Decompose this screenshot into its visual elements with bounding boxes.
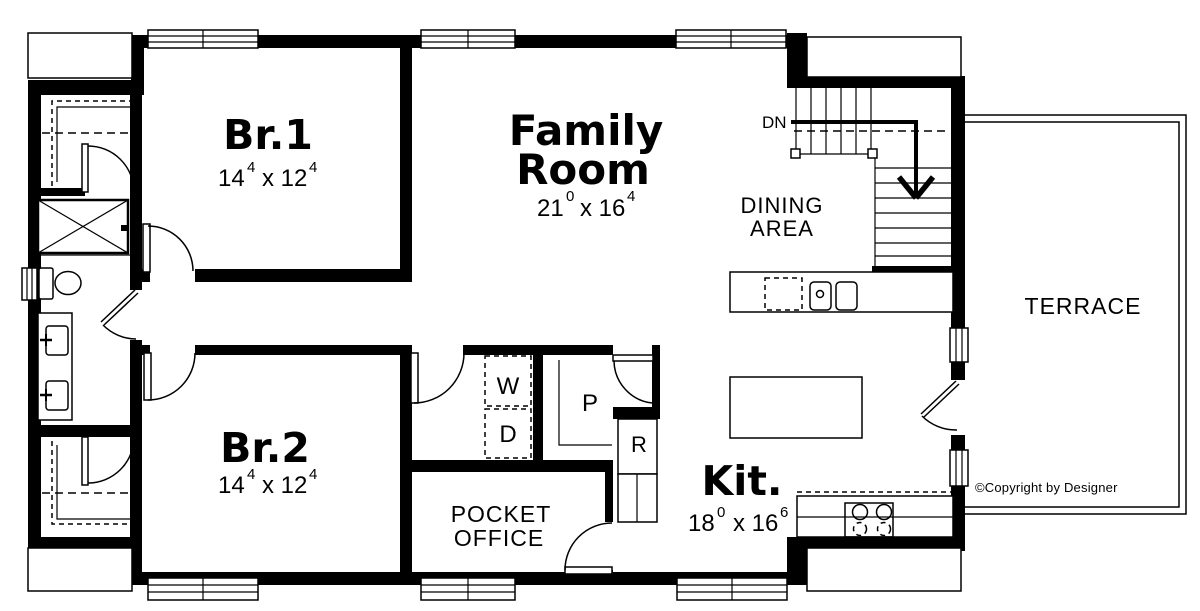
window-kitchen-east-lower	[950, 450, 968, 486]
room-label-office-line1: POCKET	[451, 501, 552, 527]
bump-out-top-right	[807, 37, 961, 77]
door-closet-br1	[82, 144, 134, 192]
vanity	[38, 313, 72, 420]
door-laundry	[411, 353, 464, 403]
south-counter	[797, 492, 953, 537]
stair-direction-label: DN	[762, 113, 787, 132]
room-dim-family-x-sup: 4	[627, 188, 635, 205]
refrigerator-label: R	[631, 432, 647, 457]
kitchen-sink-basin	[836, 282, 857, 310]
kitchen-sink	[810, 282, 831, 310]
closet1-shelf	[57, 107, 133, 182]
dn-arrow	[791, 122, 933, 198]
window-bath	[22, 268, 37, 300]
room-dim-br2-x-sup: 4	[309, 466, 317, 483]
room-label-terrace: TERRACE	[1025, 293, 1142, 319]
window-br2	[148, 578, 258, 600]
room-dim-br2-x: x 12	[262, 472, 307, 499]
window-office	[421, 578, 515, 600]
window-br1	[148, 30, 258, 48]
room-label-br2: Br.2	[220, 424, 310, 472]
room-label-dining-line2: AREA	[750, 216, 814, 241]
kitchen-island	[730, 377, 862, 438]
washer-label: W	[497, 373, 520, 400]
floor-plan: Br.1 14 4 x 12 4 Family Room 21 0 x 16 4…	[0, 0, 1200, 611]
room-label-office-line2: OFFICE	[454, 525, 544, 551]
room-dim-br1-x-sup: 4	[309, 159, 317, 176]
peninsula-counter	[730, 272, 953, 312]
kitchen-fixtures	[618, 272, 953, 537]
closet1-rod-edge	[52, 101, 133, 186]
floor-plan-drawing: Br.1 14 4 x 12 4 Family Room 21 0 x 16 4…	[0, 0, 1200, 611]
room-dim-family-x: x 16	[580, 195, 625, 222]
toilet	[39, 268, 81, 299]
room-dim-kitchen-w: 18	[688, 510, 715, 537]
room-dim-kitchen-x-sup: 6	[780, 504, 788, 521]
bathroom-fixtures	[38, 200, 130, 420]
newel-post	[868, 149, 877, 158]
room-dim-family-w-sup: 0	[566, 188, 574, 205]
room-dim-br2-w-sup: 4	[247, 466, 255, 483]
room-dim-br2-w: 14	[218, 472, 245, 499]
copyright-text: ©Copyright by Designer	[975, 480, 1118, 495]
window-kitchen-east-upper	[950, 328, 968, 362]
room-dim-kitchen-w-sup: 0	[717, 504, 725, 521]
bump-out-top-left	[28, 33, 132, 78]
dryer-label: D	[499, 421, 516, 448]
room-dim-br1-w: 14	[218, 165, 245, 192]
door-terrace	[921, 381, 959, 430]
bump-out-bottom-left	[28, 548, 132, 591]
room-dim-br1-x: x 12	[262, 165, 307, 192]
room-dim-kitchen-x: x 16	[733, 510, 778, 537]
shower	[38, 200, 128, 253]
newel-post	[791, 149, 800, 158]
window-family-right	[676, 30, 786, 48]
door-pocket-office	[565, 523, 612, 574]
room-dim-br1-w-sup: 4	[247, 159, 255, 176]
door-br1	[143, 224, 193, 272]
room-dim-family-w: 21	[537, 195, 564, 222]
pantry-label: P	[582, 390, 598, 417]
room-label-family-line2: Room	[516, 145, 650, 194]
stairs	[791, 88, 952, 295]
room-label-br1: Br.1	[223, 111, 313, 159]
window-family-left	[421, 30, 515, 48]
door-pantry	[613, 355, 653, 403]
bump-out-bottom-right	[807, 548, 961, 591]
window-kitchen-south	[677, 578, 787, 600]
room-label-kitchen: Kit.	[702, 457, 783, 505]
door-br2	[144, 353, 195, 400]
room-label-dining-line1: DINING	[741, 193, 824, 218]
door-bathroom	[101, 290, 138, 339]
door-closet-br2	[82, 437, 134, 485]
